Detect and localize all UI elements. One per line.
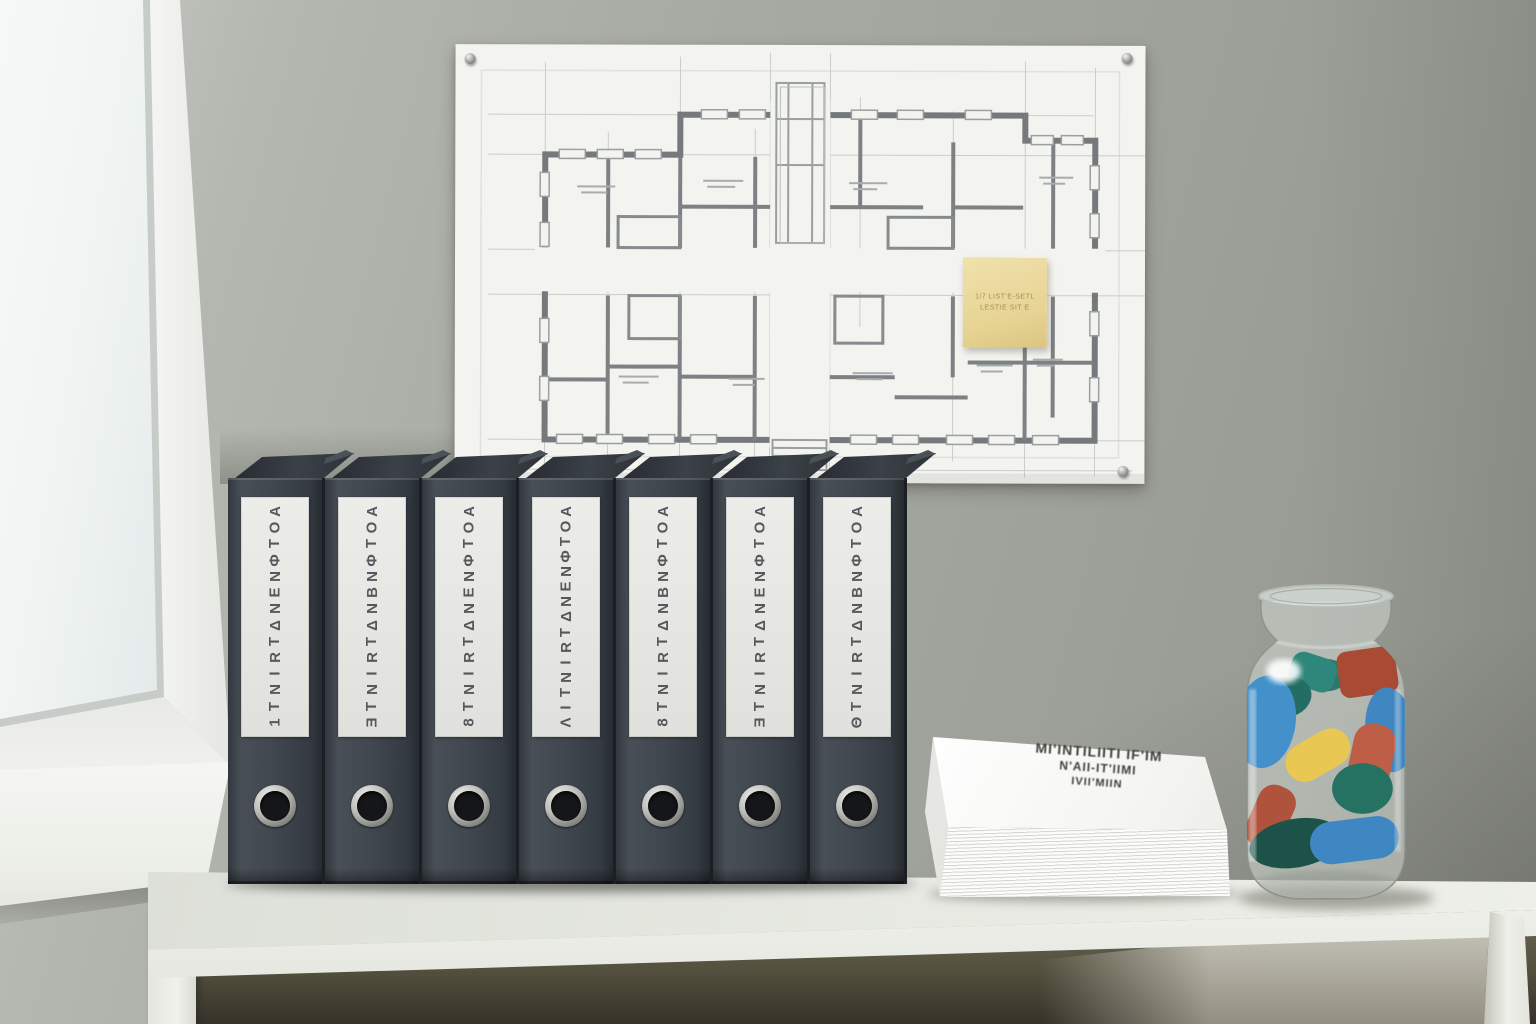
binder-label: AOTΦNBNΔTRINT8 [629,497,697,737]
binder-ring-hole [739,785,781,827]
binder-label: AOTΦNENΔTRINT8 [435,497,503,737]
binder: AOTΦNBNΔTRINTƎ [325,450,422,884]
binder-label-text: AOTΦNBNΔTRINTΘ [823,497,891,737]
binder-ring-hole [642,785,684,827]
binder-label-text: AOTΦNENΔTRINT8 [435,497,503,737]
binder-row: AOTΦNENΔTRINT1 AOTΦNBNΔTRINTƎ AOTΦNENΔTR… [228,450,928,884]
paper-stack: MI'INTILIITI IF'IM N'AII-IT'IIMI IVII'MI… [920,728,1242,903]
binder-ring-hole [448,785,490,827]
binder: AOTΦNENΔTRINT8 [422,450,519,884]
binder-ring-hole [836,785,878,827]
glass-jar [1224,578,1428,912]
sticky-note-line: LESTIE SIT E [963,304,1047,312]
sticky-note: 1/7 LIST'E-SETL LESTIE SIT E [963,257,1047,347]
binder: AOTΦNBNΔTRINT8 [616,450,713,884]
binder: AOTΦNENΔTRINT1 [228,450,325,884]
binder: AOTΦNENΔTRINTIΛ [519,450,616,884]
binder-label: AOTΦNENΔTRINT1 [241,497,309,737]
push-pin-icon [465,53,476,64]
push-pin-icon [1122,53,1133,64]
binder-label-text: AOTΦNENΔTRINT1 [241,497,309,737]
binder-ring-hole [545,785,587,827]
blueprint-poster: 1/7 LIST'E-SETL LESTIE SIT E [454,44,1145,484]
binder-label-text: AOTΦNBNΔTRINTƎ [338,497,406,737]
push-pin-icon [1117,466,1128,477]
binder-label-text: AOTΦNENΔTRINTIΛ [532,497,600,737]
jar-piece [1332,763,1393,814]
binder-label: AOTΦNBNΔTRINTƎ [338,497,406,737]
jar-contents [1228,645,1419,875]
binder-label: AOTΦNENΔTRINTƎ [726,497,794,737]
binder-ring-hole [254,785,296,827]
binder-label-text: AOTΦNBNΔTRINT8 [629,497,697,737]
binder-ring-hole [351,785,393,827]
binder: AOTΦNENΔTRINTƎ [713,450,810,884]
binder-label: AOTΦNENΔTRINTIΛ [532,497,600,737]
jar-piece [1228,762,1246,798]
binder-label-text: AOTΦNENΔTRINTƎ [726,497,794,737]
sticky-note-line: 1/7 LIST'E-SETL [963,293,1047,301]
binder: AOTΦNBNΔTRINTΘ [810,450,907,884]
binder-label: AOTΦNBNΔTRINTΘ [823,497,891,737]
